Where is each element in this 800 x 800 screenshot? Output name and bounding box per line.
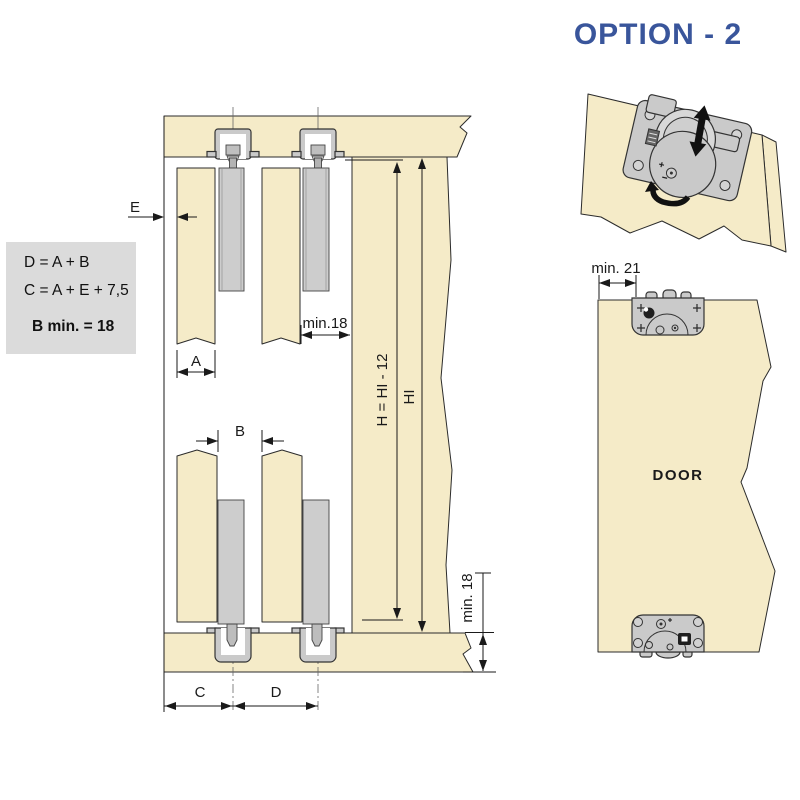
door-profile-upper-left bbox=[219, 168, 244, 291]
hanger-bolt bbox=[315, 158, 322, 168]
dimension-a: A bbox=[177, 350, 215, 378]
guide-pin-right bbox=[312, 624, 322, 646]
dim-label-c: C bbox=[195, 684, 206, 701]
roller bbox=[311, 145, 325, 155]
dim-label-h: H = HI - 12 bbox=[374, 354, 391, 427]
bottom-wheel bbox=[656, 652, 680, 658]
page: OPTION - 2 D = A + B C = A + E + 7,5 B m… bbox=[0, 0, 800, 800]
technical-diagram: E A B min.18 bbox=[0, 0, 800, 800]
dim-label-a: A bbox=[191, 353, 201, 370]
dimension-b: B bbox=[196, 423, 284, 452]
dim-label-e: E bbox=[130, 199, 140, 216]
doors-lower-section bbox=[177, 450, 329, 646]
dimension-min21: min. 21 bbox=[591, 260, 640, 299]
roller-3d-illustration bbox=[581, 92, 786, 252]
top-roller-plate bbox=[632, 298, 704, 335]
front-door-upper bbox=[177, 168, 215, 344]
dimension-min18-top: min.18 bbox=[301, 315, 350, 344]
roller bbox=[226, 145, 240, 155]
door-label: DOOR bbox=[653, 467, 704, 484]
back-door-upper bbox=[262, 168, 300, 344]
dimension-c-d: C D bbox=[164, 684, 318, 710]
door-bottom-roller bbox=[632, 615, 704, 658]
dim-label-d: D bbox=[271, 684, 282, 701]
dim-label-hi: HI bbox=[401, 390, 418, 405]
door-illustration: min. 21 DOOR bbox=[591, 260, 775, 658]
door-profile-lower-right bbox=[303, 500, 329, 624]
door-profile-lower-left bbox=[218, 500, 244, 624]
dim-label-min18-top: min.18 bbox=[302, 315, 347, 332]
hanger-bolt bbox=[230, 158, 237, 168]
dim-label-b: B bbox=[235, 423, 245, 440]
guide-pin-left bbox=[227, 624, 237, 646]
back-door-lower bbox=[262, 450, 302, 622]
dim-label-min18-bottom: min. 18 bbox=[459, 573, 476, 622]
door-top-roller bbox=[632, 290, 704, 335]
door-profile-upper-right bbox=[303, 168, 329, 291]
front-door-lower bbox=[177, 450, 217, 622]
dim-label-min21: min. 21 bbox=[591, 260, 640, 277]
